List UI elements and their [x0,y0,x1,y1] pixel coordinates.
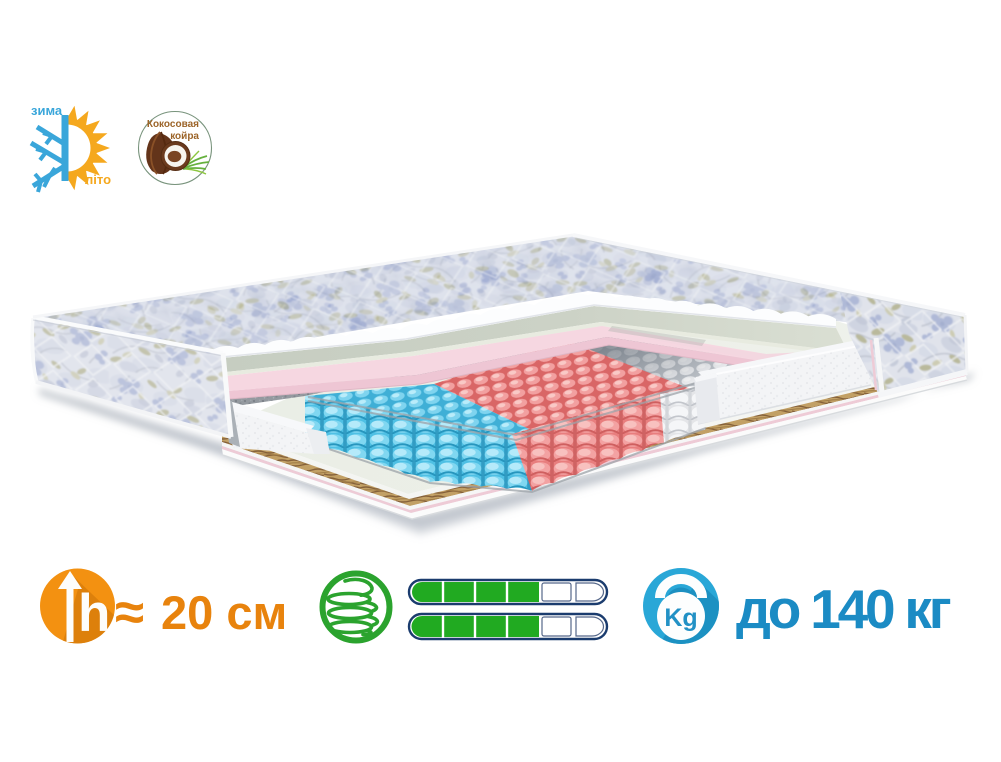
svg-text:h: h [78,584,110,643]
svg-text:Kg: Kg [664,604,697,632]
svg-text:зима: зима [31,103,63,118]
svg-text:≈: ≈ [115,583,144,642]
svg-text:20 см: 20 см [161,586,287,639]
svg-text:Кокосовая: Кокосовая [147,119,199,130]
svg-text:літо: літо [85,172,111,187]
svg-text:койра: койра [170,131,199,142]
svg-text:до 140 кг: до 140 кг [736,578,951,640]
